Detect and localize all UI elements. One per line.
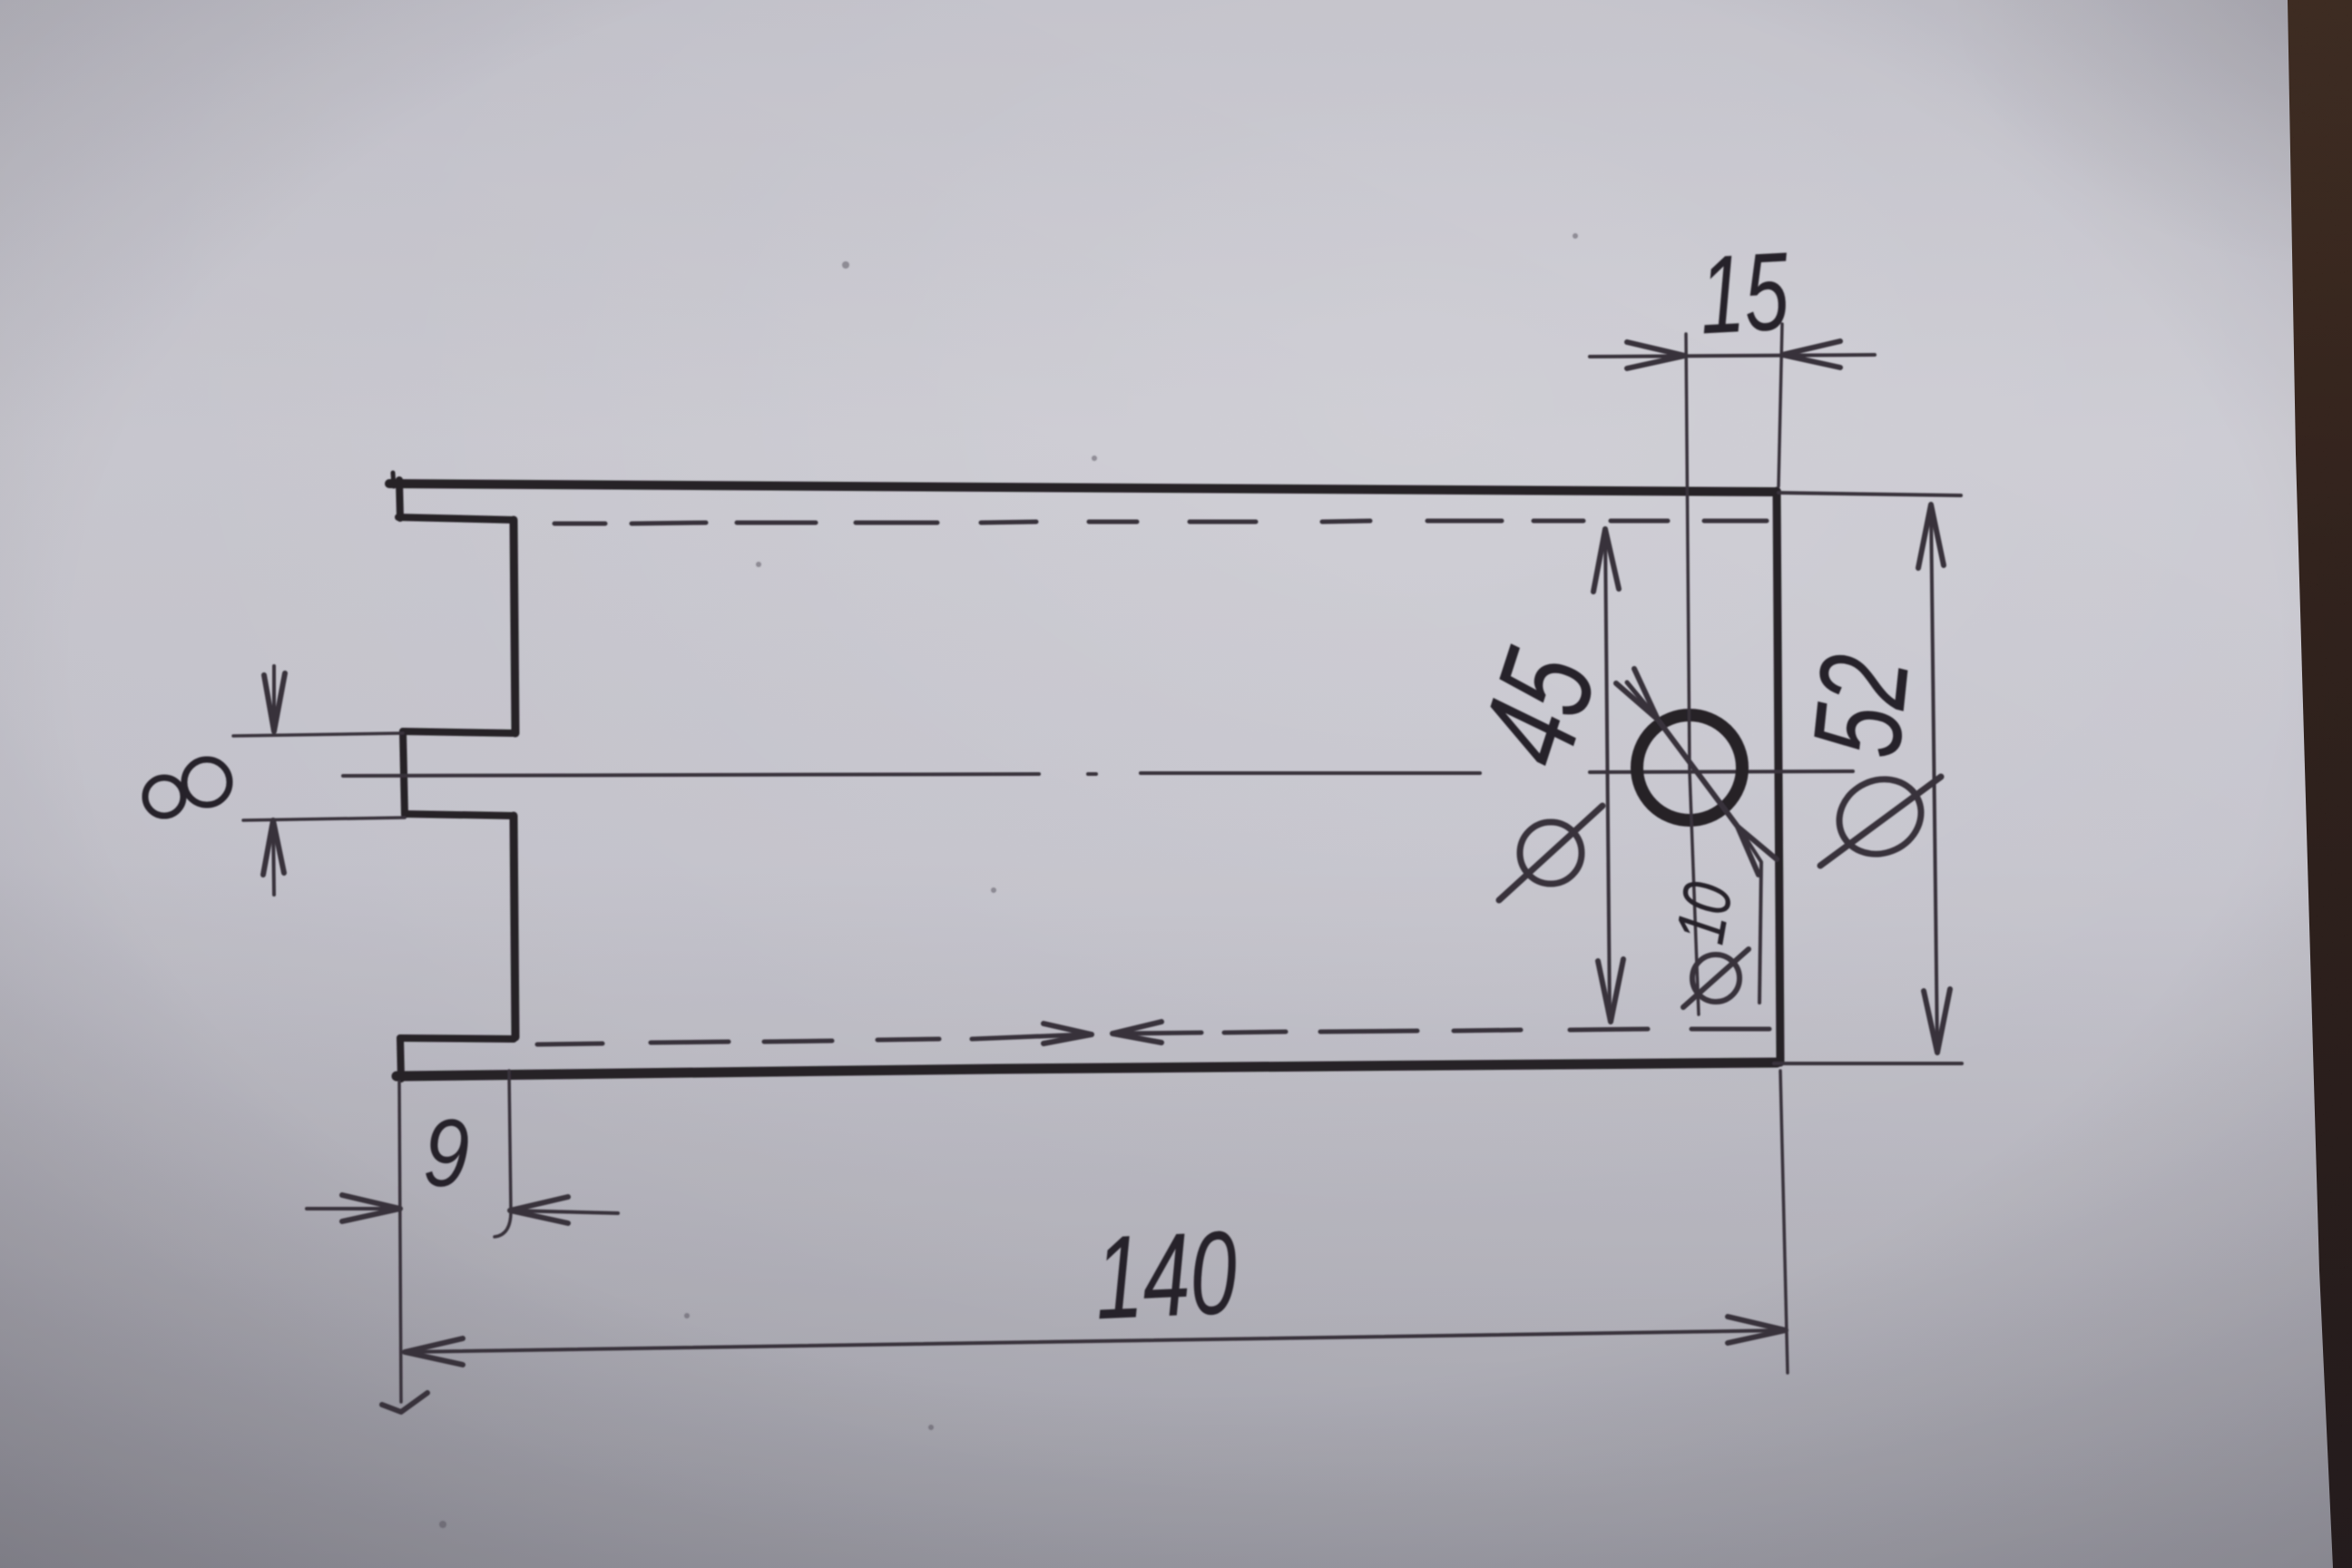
svg-text:140: 140 — [1093, 1207, 1240, 1345]
svg-text:9: 9 — [422, 1098, 471, 1207]
svg-text:15: 15 — [1697, 229, 1792, 358]
svg-text:52: 52 — [1787, 649, 1935, 763]
